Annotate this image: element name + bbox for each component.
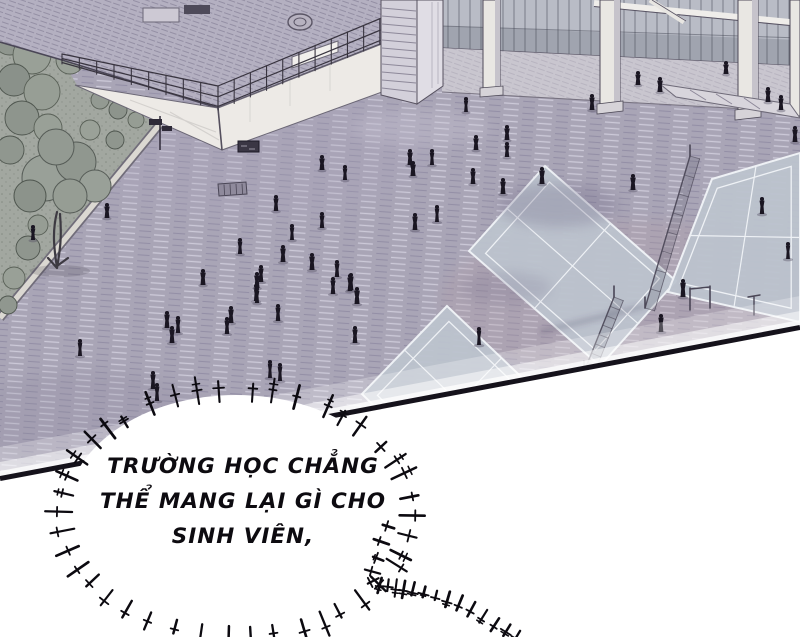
drain-grate xyxy=(218,182,247,196)
pillar xyxy=(597,0,623,114)
wall-plaque xyxy=(238,141,259,152)
pillar xyxy=(480,0,503,97)
roof-skylight xyxy=(143,8,179,22)
comic-page: TRƯỜNG HỌC CHẲNG THỂ MANG LẠI GÌ CHO SIN… xyxy=(0,0,800,637)
building-column xyxy=(381,0,443,104)
courtyard-panel-scene xyxy=(0,0,800,637)
roof-unit xyxy=(288,14,312,30)
roof-vent xyxy=(184,5,210,14)
pillar xyxy=(790,0,800,116)
